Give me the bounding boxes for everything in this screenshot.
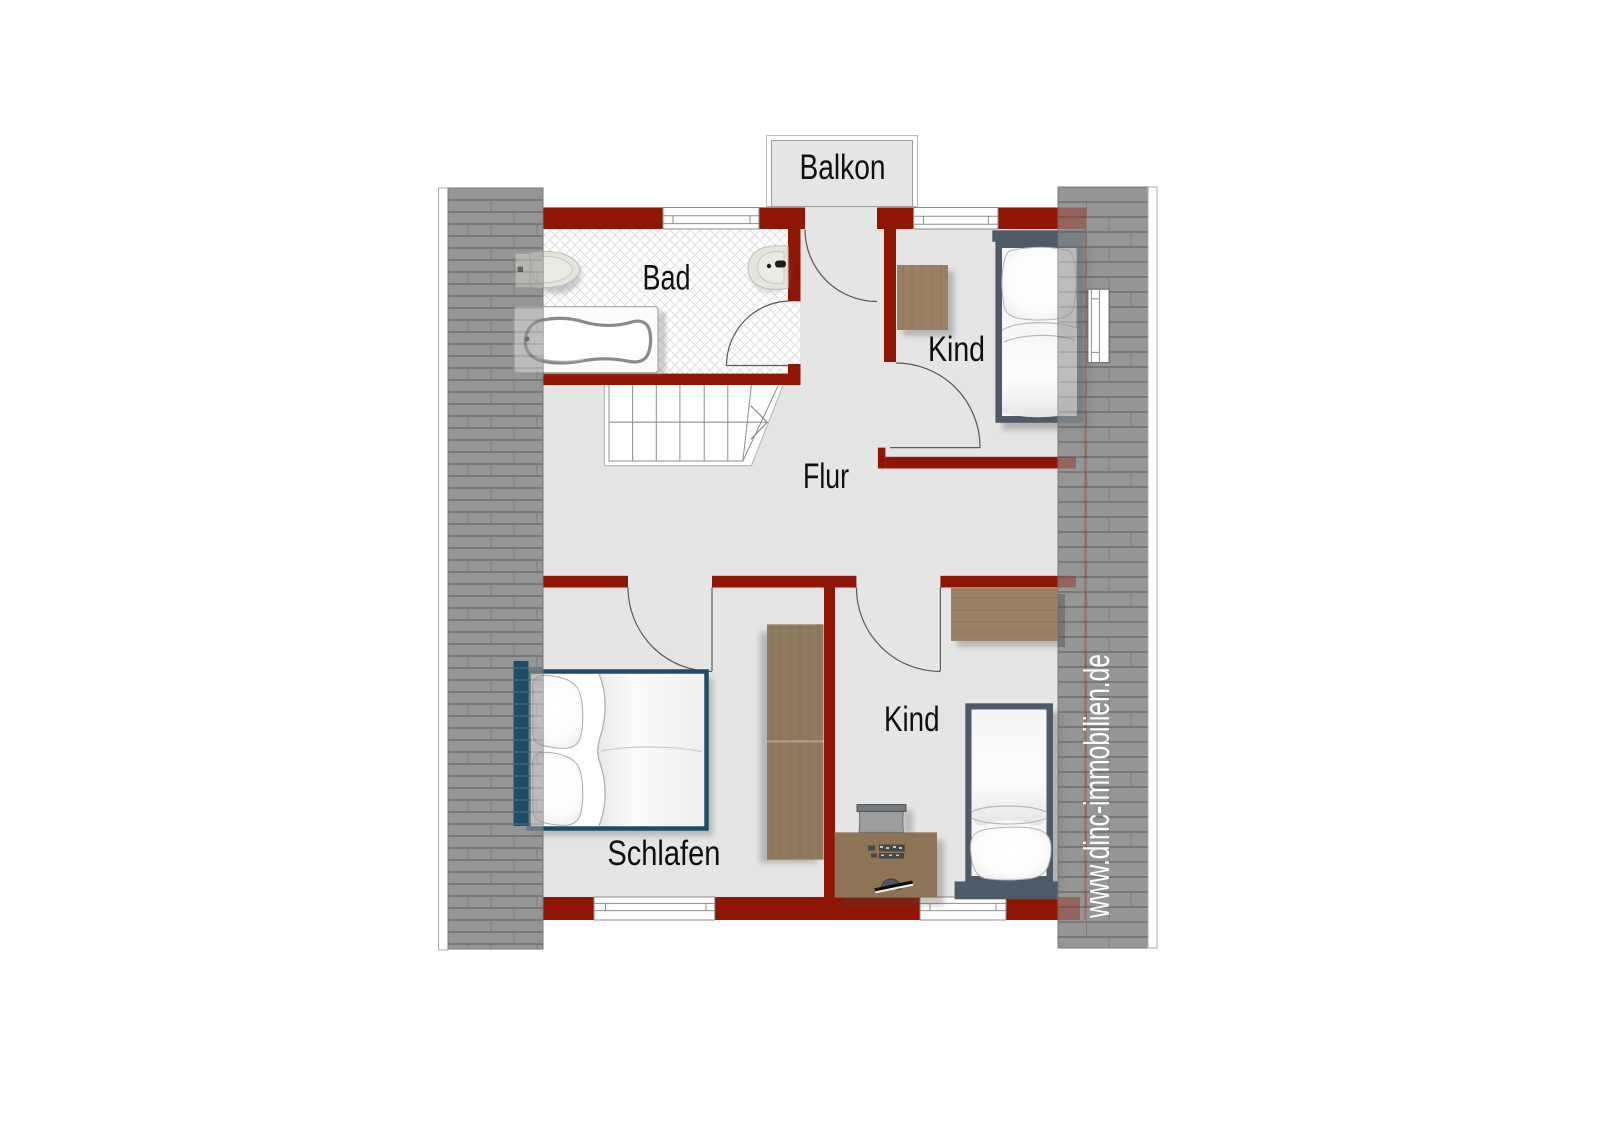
svg-text:Flur: Flur xyxy=(803,457,849,496)
svg-text:Schlafen: Schlafen xyxy=(607,834,720,873)
svg-text:Kind: Kind xyxy=(884,700,940,739)
svg-text:www.dinc-immobilien.de: www.dinc-immobilien.de xyxy=(1076,654,1117,919)
svg-text:Bad: Bad xyxy=(643,259,691,298)
svg-text:Kind: Kind xyxy=(928,330,985,369)
svg-text:Balkon: Balkon xyxy=(800,148,886,187)
